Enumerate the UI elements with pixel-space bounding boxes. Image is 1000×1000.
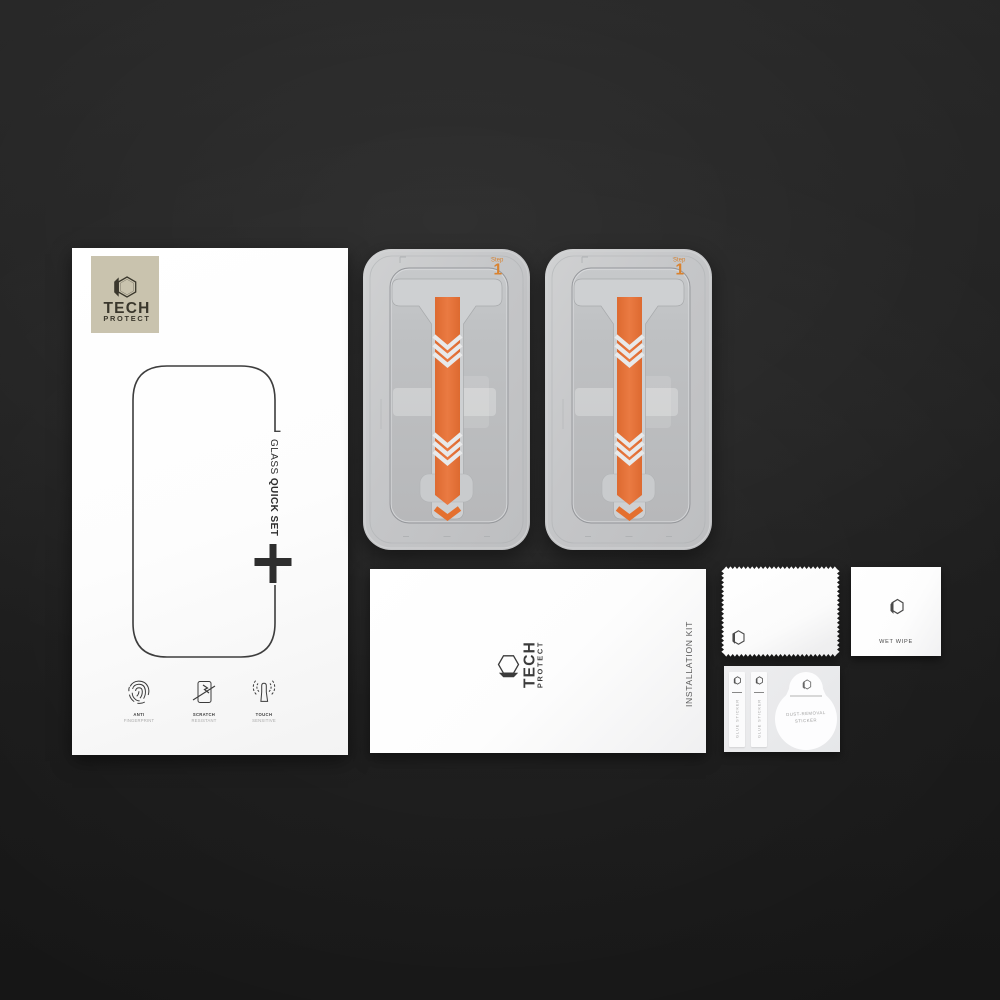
- svg-text:1: 1: [494, 262, 503, 279]
- svg-text:1: 1: [676, 262, 685, 279]
- svg-text:PROTECT: PROTECT: [535, 640, 544, 687]
